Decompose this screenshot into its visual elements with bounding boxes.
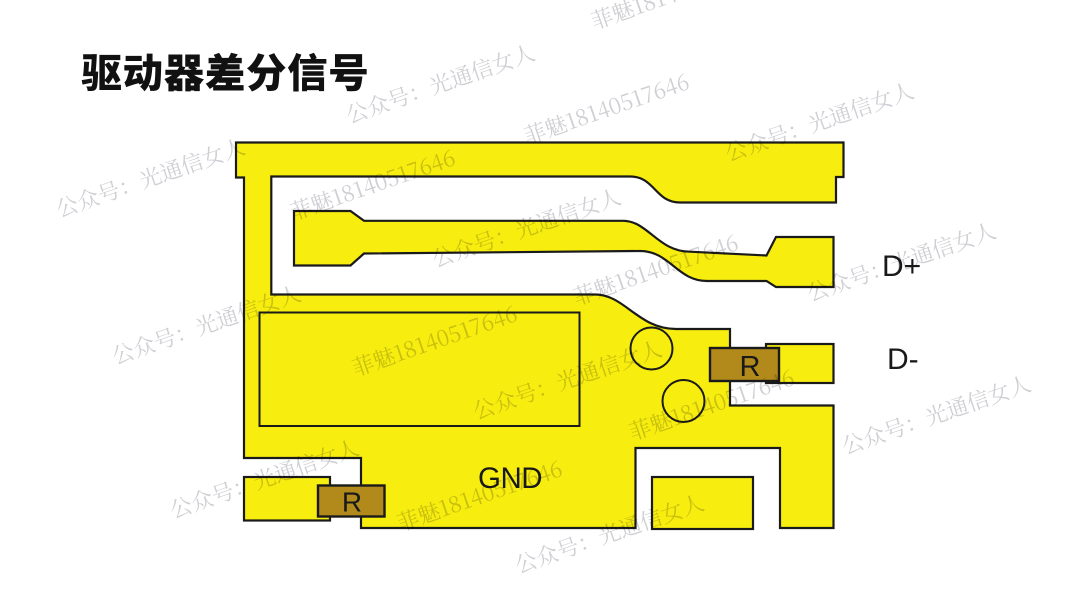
- svg-text:R: R: [740, 351, 761, 383]
- svg-text:R: R: [342, 487, 362, 518]
- svg-text:D-: D-: [887, 343, 919, 376]
- svg-text:GND: GND: [478, 462, 542, 495]
